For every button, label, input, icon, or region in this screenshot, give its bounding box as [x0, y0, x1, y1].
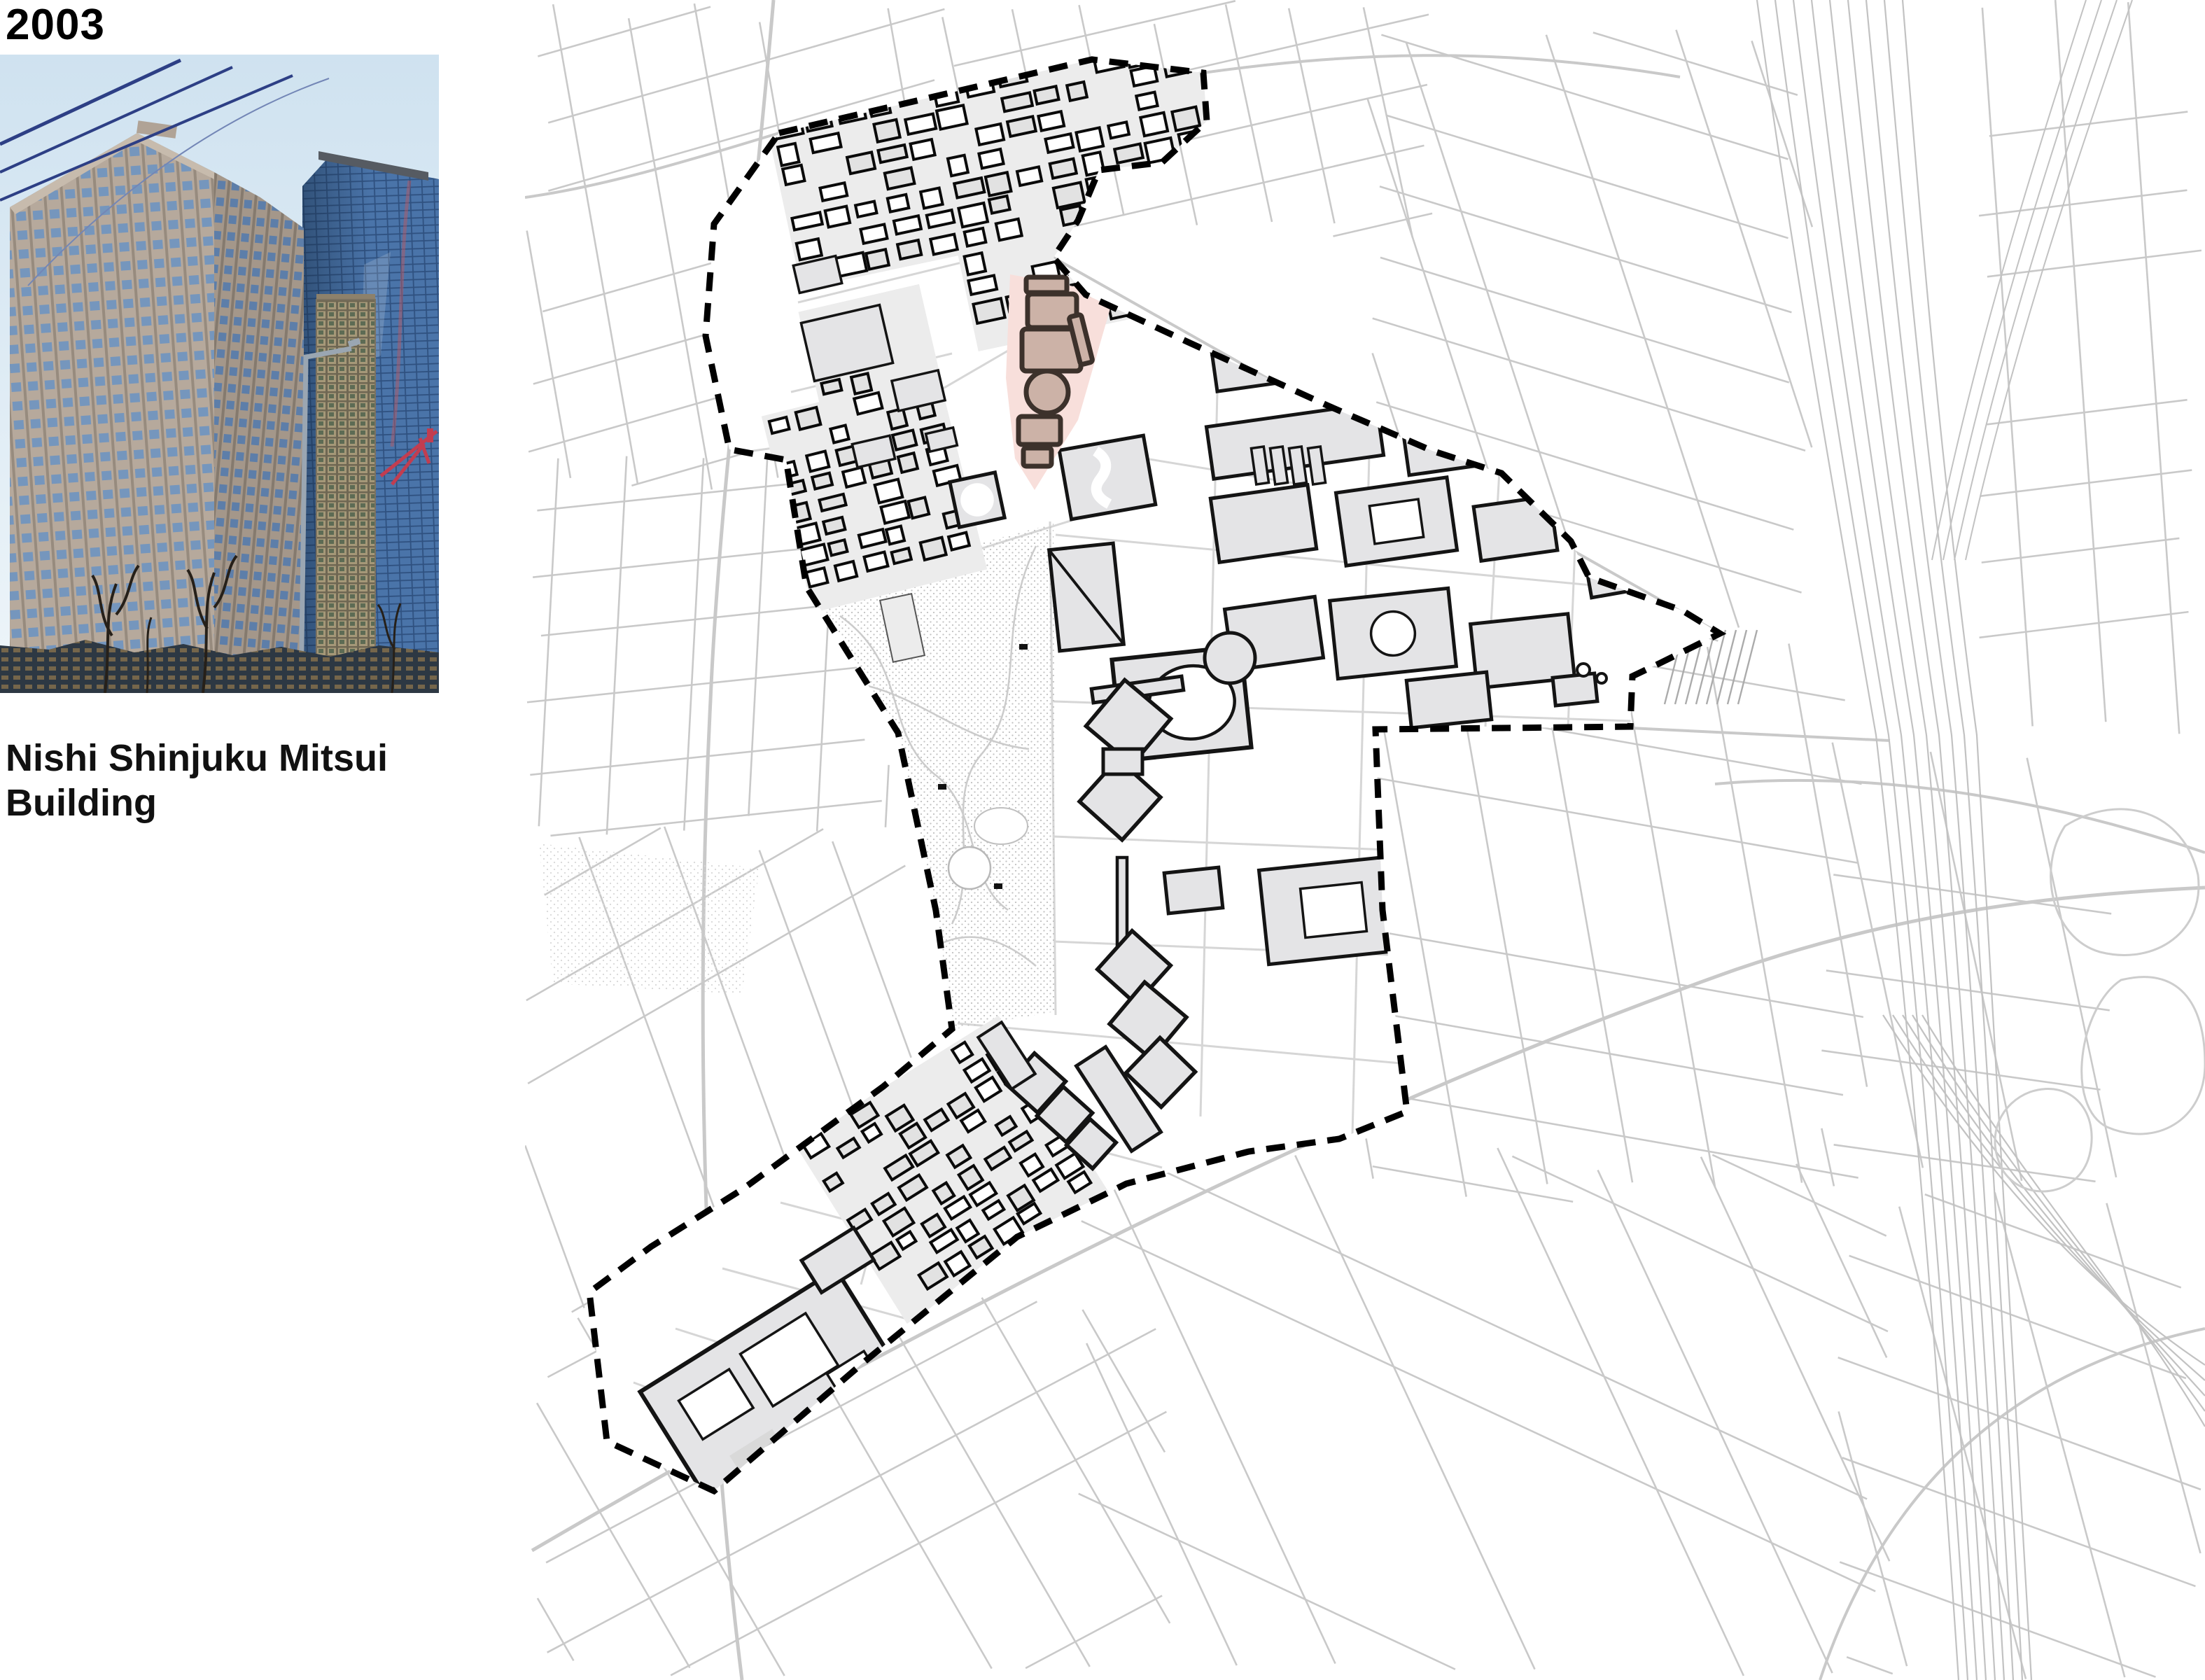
building-photo — [0, 55, 439, 693]
year-label: 2003 — [6, 0, 105, 50]
stone-tower — [10, 120, 304, 693]
district-map — [525, 0, 2205, 1680]
photo-caption: Nishi Shinjuku Mitsui Building — [6, 736, 426, 825]
railway-lines — [1665, 0, 2205, 1680]
